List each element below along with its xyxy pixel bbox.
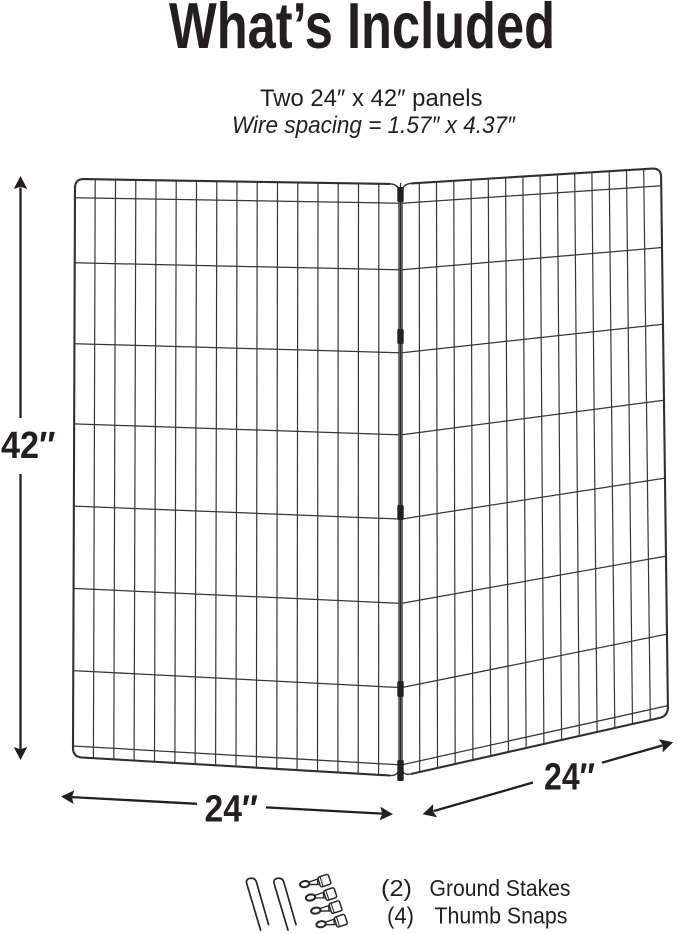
svg-text:Thumb Snaps: Thumb Snaps	[435, 903, 568, 929]
svg-text:42″: 42″	[1, 425, 56, 467]
svg-text:(4): (4)	[387, 903, 414, 929]
svg-text:Wire spacing = 1.57″ x 4.37″: Wire spacing = 1.57″ x 4.37″	[232, 112, 516, 139]
svg-text:(2): (2)	[381, 875, 412, 901]
svg-text:Ground Stakes: Ground Stakes	[430, 875, 571, 901]
svg-text:24″: 24″	[544, 757, 595, 799]
svg-text:Two 24″ x 42″ panels: Two 24″ x 42″ panels	[260, 85, 483, 112]
svg-text:What’s Included: What’s Included	[169, 0, 555, 62]
svg-text:24″: 24″	[205, 789, 259, 831]
